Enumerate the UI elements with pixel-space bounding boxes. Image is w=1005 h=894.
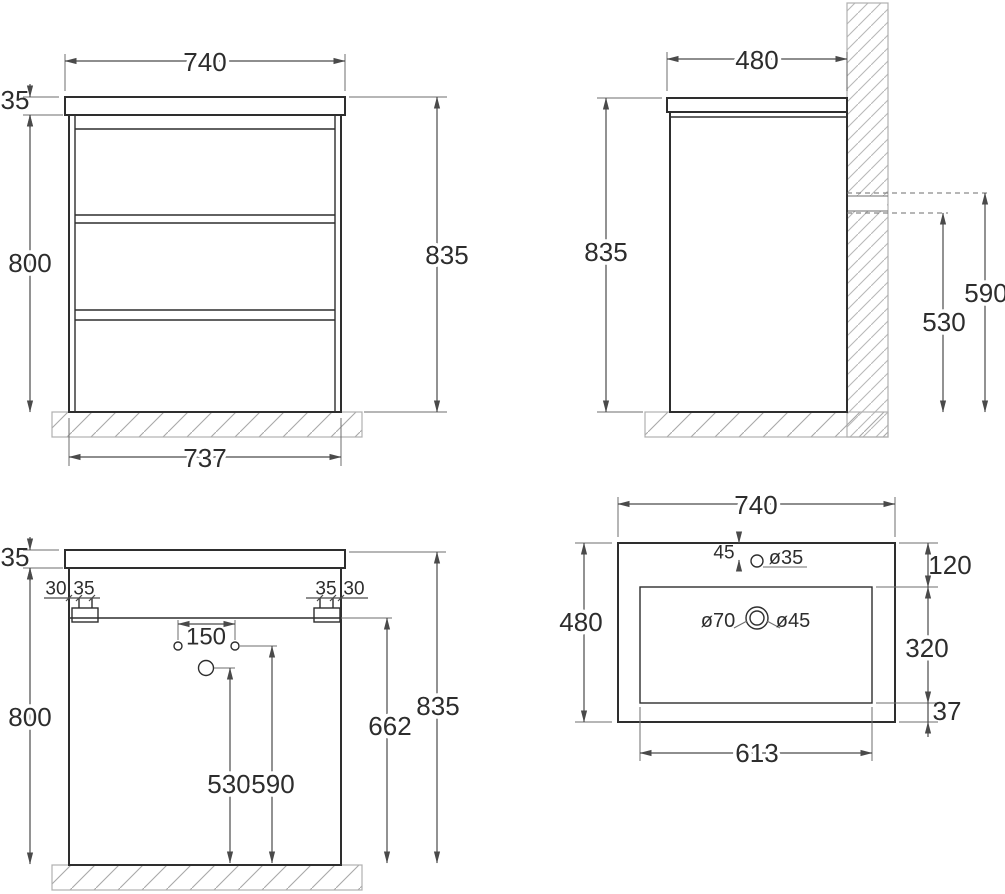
dim-480: 480 [667, 45, 847, 91]
dim-835: 835 [584, 98, 662, 412]
cabinet-panel-lines [75, 115, 335, 412]
sink-top-view: 45 ø35 ø70 ø45 740 480 [559, 490, 971, 768]
dim-800: 800 [8, 568, 51, 864]
dim-text-top-width: 740 [183, 47, 226, 77]
dim-text-left-offset: 30 [45, 579, 66, 600]
dim-text-faucet-offset: 45 [713, 543, 734, 564]
dim-150: 150 [178, 620, 235, 651]
dim-text-lower-outlet: 530 [922, 307, 965, 337]
countertop [65, 97, 345, 115]
dim-text-basin-width: 613 [735, 738, 778, 768]
cabinet-body [670, 112, 847, 412]
dim-835: 835 [349, 97, 469, 412]
dim-text-depth: 480 [559, 607, 602, 637]
back-view: 30 35 35 30 150 530 590 [1, 537, 460, 890]
faucet-hole [751, 555, 763, 567]
dim-530: 530 [922, 213, 965, 412]
dim-text-faucet-dia: ø35 [769, 547, 803, 569]
cabinet-body [69, 115, 341, 412]
sink-outline [618, 543, 895, 722]
label-overflow-dia: ø70 [701, 610, 747, 632]
floor-hatch [52, 412, 362, 437]
floor-hatch [52, 865, 362, 890]
dim-text-body-height: 800 [8, 702, 51, 732]
dim-text-width: 740 [734, 490, 777, 520]
dim-590: 590 [251, 646, 294, 863]
dim-text-countertop-thickness: 35 [1, 542, 30, 572]
drain-hole [199, 661, 214, 676]
drain-inner-circle [750, 611, 764, 625]
dim-text-overall-height: 835 [584, 237, 627, 267]
dim-text-right-bracket: 35 [315, 579, 336, 600]
countertop [667, 98, 847, 112]
dim-text-basin-depth: 320 [905, 633, 948, 663]
dim-740: 740 [65, 47, 345, 91]
dim-35: 35 [1, 84, 63, 128]
dim-text-overflow-dia: ø70 [701, 610, 735, 632]
dim-text-front-margin: 37 [933, 696, 962, 726]
dim-662: 662 [368, 618, 411, 863]
dim-text-countertop-thickness: 35 [1, 85, 30, 115]
dim-590: 590 [964, 193, 1005, 412]
dim-text-upper-outlet: 590 [964, 278, 1005, 308]
side-view: 480 835 590 530 [584, 3, 1005, 437]
wall-hatch [847, 3, 888, 437]
technical-drawing: 740 35 800 835 737 [0, 0, 1005, 894]
dim-530: 530 [207, 668, 250, 863]
supply-hole-left [174, 642, 182, 650]
dim-480: 480 [559, 543, 612, 722]
dim-text-left-bracket: 35 [73, 579, 94, 600]
dim-left-bracket: 30 35 [44, 579, 100, 602]
drain-outer-circle [746, 607, 768, 629]
dim-text-back-margin: 120 [928, 550, 971, 580]
cabinet-back-panel [69, 568, 341, 865]
dim-text-bottom-width: 737 [183, 443, 226, 473]
floor-hatch [645, 412, 888, 437]
label-faucet-dia: ø35 [763, 547, 807, 569]
dim-text-overall-height: 835 [425, 240, 468, 270]
dim-text-right-offset: 30 [343, 579, 364, 600]
label-drain-dia: ø45 [767, 610, 810, 632]
wall-outlet-recess [848, 196, 887, 211]
dim-text-overall-height: 835 [416, 691, 459, 721]
dim-35: 35 [1, 537, 63, 581]
basin-outline [640, 587, 872, 703]
dim-45: 45 [713, 532, 739, 571]
dim-right-bracket: 35 30 [306, 579, 368, 602]
dim-740: 740 [618, 490, 895, 537]
dim-text-drain-dia: ø45 [776, 610, 810, 632]
dim-835: 835 [349, 552, 460, 863]
dim-text-supply-height: 590 [251, 769, 294, 799]
dim-right-stack: 120 320 37 [876, 543, 972, 737]
dim-text-body-height: 800 [8, 248, 51, 278]
dim-text-drain-height: 530 [207, 769, 250, 799]
dim-text-bracket-height: 662 [368, 711, 411, 741]
dim-613: 613 [640, 707, 872, 768]
dim-text-depth: 480 [735, 45, 778, 75]
dim-text-hole-spacing: 150 [186, 624, 226, 651]
countertop [65, 550, 345, 568]
front-view: 740 35 800 835 737 [1, 47, 469, 473]
drawing-canvas: 740 35 800 835 737 [0, 0, 1005, 894]
supply-hole-right [231, 642, 239, 650]
dim-800: 800 [8, 115, 51, 412]
